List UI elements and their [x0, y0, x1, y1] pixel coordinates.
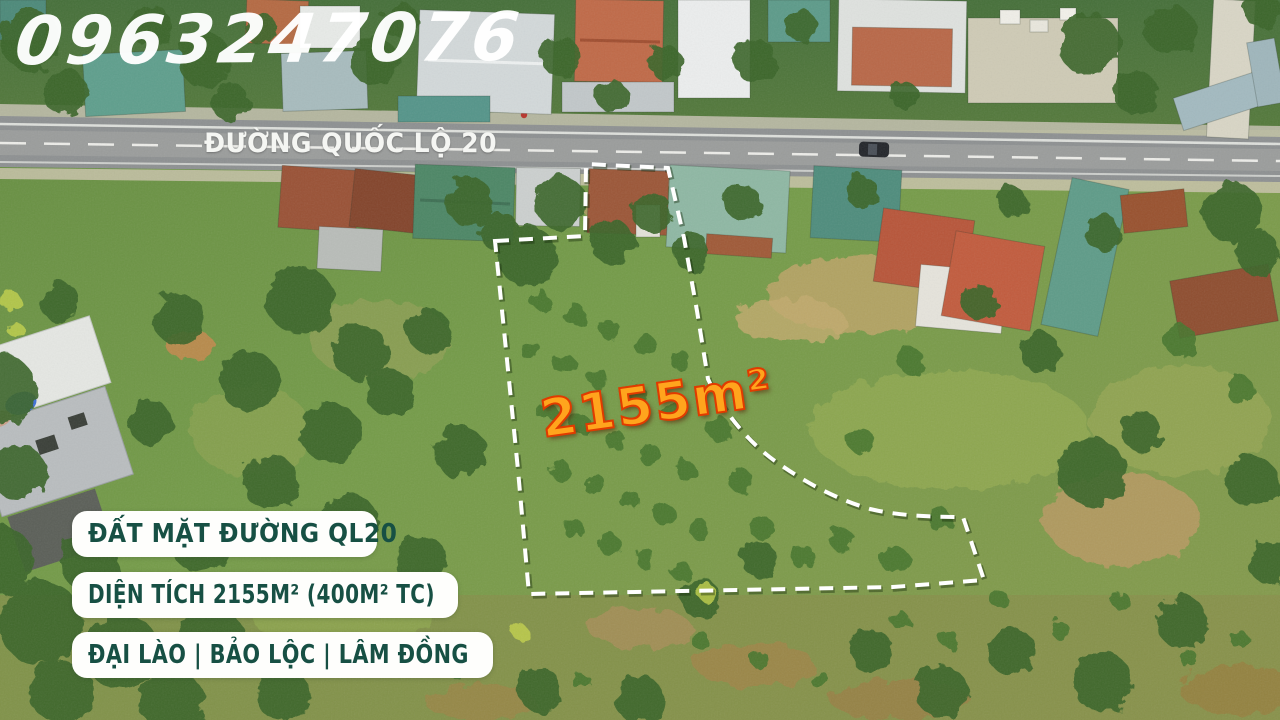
road-name-label: ĐƯỜNG QUỐC LỘ 20 — [204, 128, 497, 159]
info-card-area: DIỆN TÍCH 2155M² (400M² TC) — [72, 572, 458, 618]
info-card-frontage: ĐẤT MẶT ĐƯỜNG QL20 — [72, 511, 377, 557]
real-estate-listing-photo: 0963247076 ĐƯỜNG QUỐC LỘ 20 2155m² ĐẤT M… — [0, 0, 1280, 720]
info-card-location: ĐẠI LÀO | BẢO LỘC | LÂM ĐỒNG — [72, 632, 493, 678]
watermark-phone-number: 0963247076 — [11, 0, 527, 80]
info-card-location-text: ĐẠI LÀO | BẢO LỘC | LÂM ĐỒNG — [88, 640, 469, 670]
info-card-area-text: DIỆN TÍCH 2155M² (400M² TC) — [88, 580, 435, 610]
info-card-frontage-text: ĐẤT MẶT ĐƯỜNG QL20 — [88, 519, 397, 549]
